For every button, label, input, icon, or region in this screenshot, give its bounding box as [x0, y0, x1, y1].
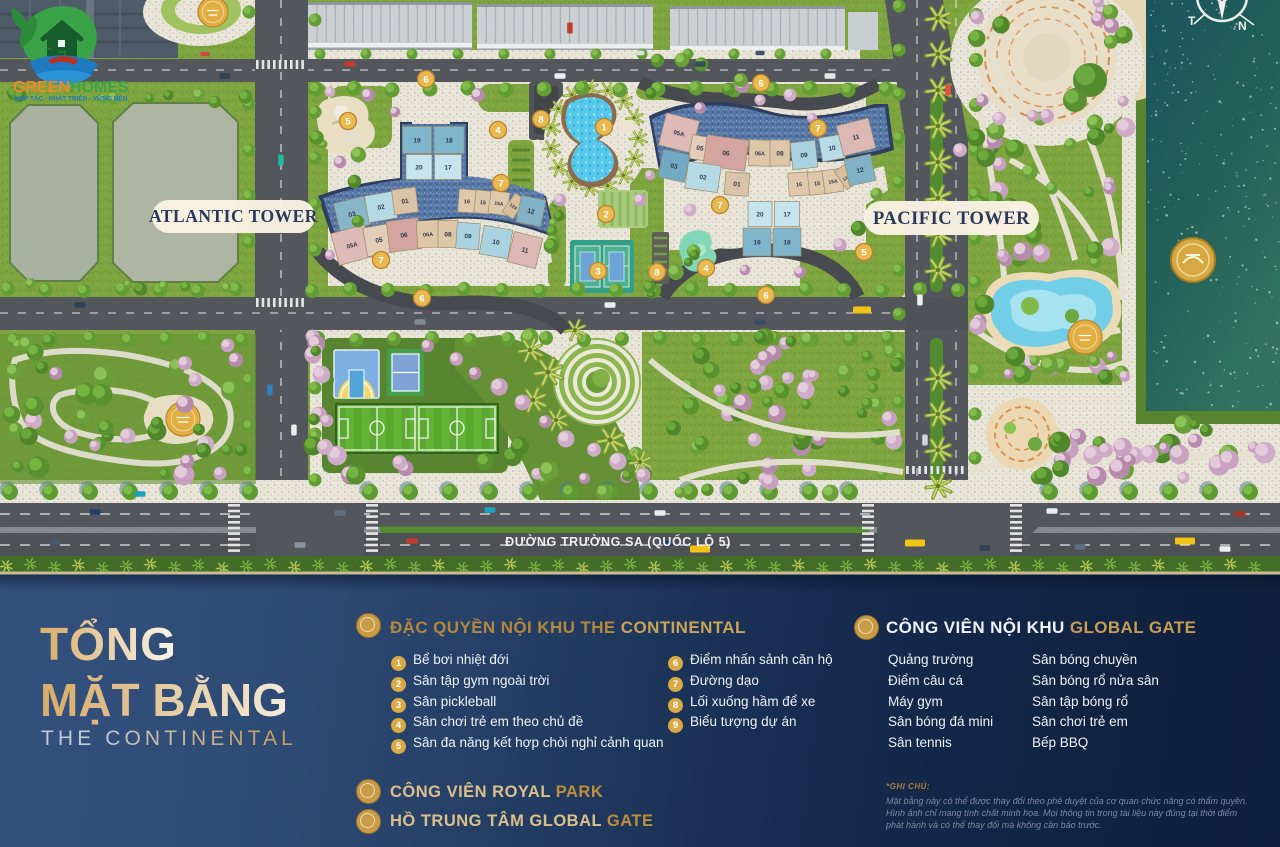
svg-text:GREENHOMES: GREENHOMES: [13, 79, 129, 96]
